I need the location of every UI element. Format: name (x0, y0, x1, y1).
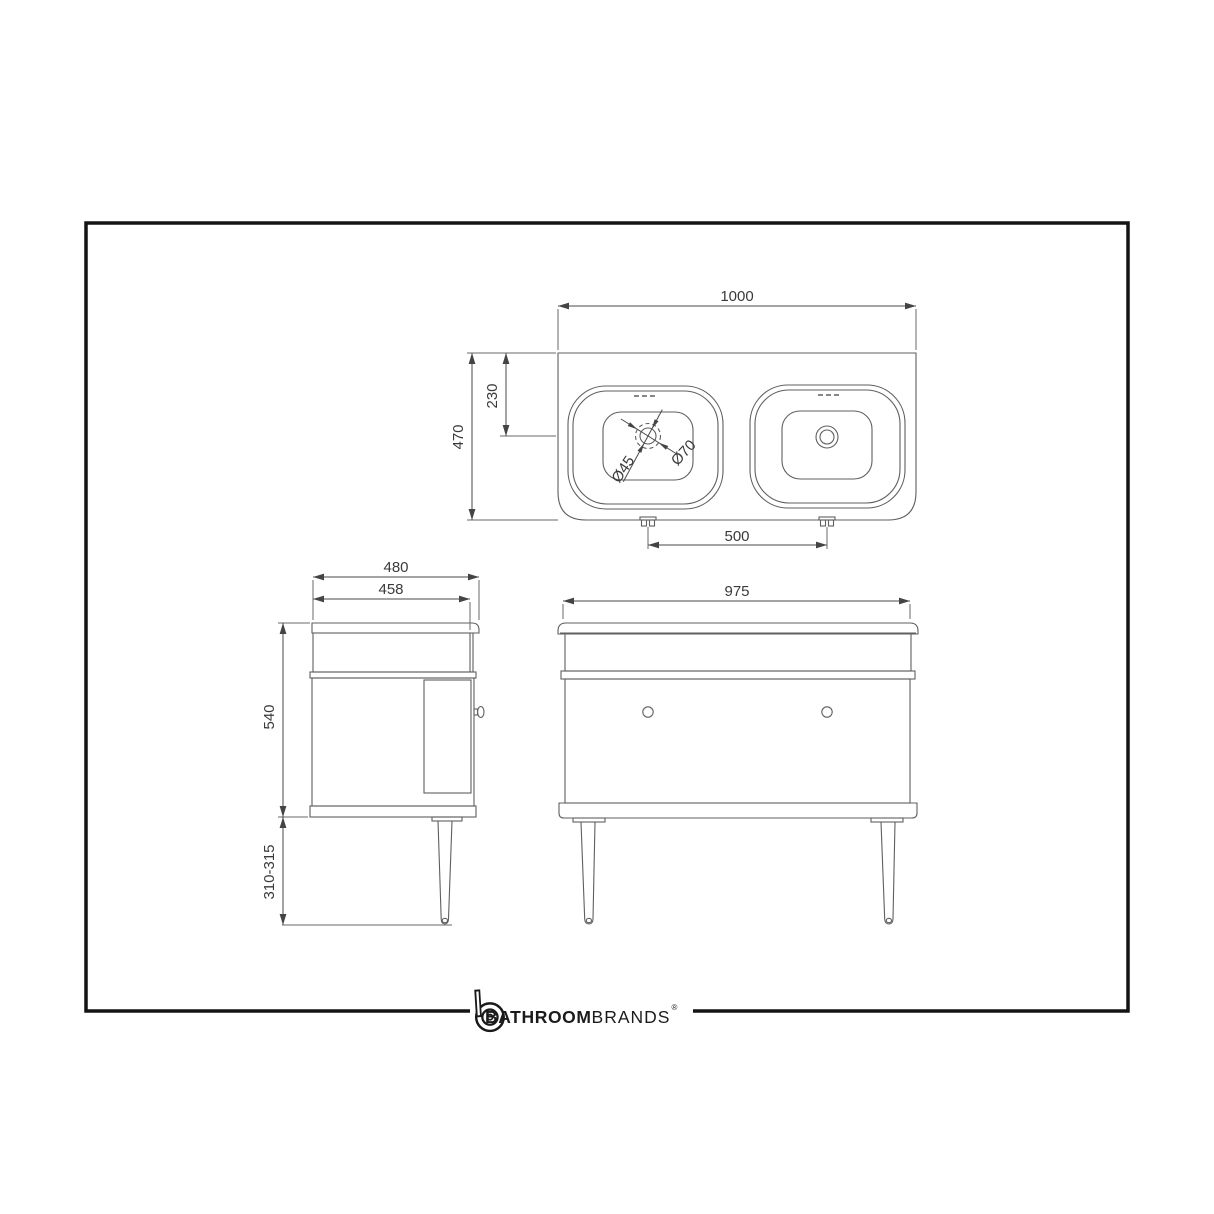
dim-waste-small-label: Ø45 (608, 453, 638, 486)
dim-front-width-label: 975 (724, 583, 749, 600)
front-leg-right (871, 818, 903, 924)
side-basin-band (313, 633, 473, 672)
front-mid-lip (561, 671, 915, 679)
dim-waste-large-label: Ø70 (668, 437, 700, 469)
side-leg (438, 821, 452, 924)
basin-right (750, 385, 905, 508)
dim-leg-height-label: 310-315 (261, 844, 278, 899)
dim-drain-setback: 230 (484, 353, 556, 436)
side-view: 480 458 540 310-315 (261, 559, 484, 925)
side-leg-foot (442, 918, 447, 922)
front-view: 975 (558, 583, 918, 924)
bathroom-brands-logo-icon (470, 987, 508, 1034)
fixing-brackets (640, 517, 835, 526)
dim-top-depth-label: 470 (450, 424, 467, 449)
dim-cabinet-height-label: 540 (261, 704, 278, 729)
dim-top-width-label: 1000 (720, 288, 753, 305)
side-knob (474, 707, 484, 718)
side-counter-rim (312, 623, 479, 633)
front-drawer (565, 679, 910, 803)
side-leg-plate (432, 817, 462, 821)
dim-top-width: 1000 (558, 288, 916, 350)
top-view: Ø45 Ø70 (450, 288, 916, 549)
basin-right-outer-rim (750, 385, 905, 508)
dim-side-depth-overall-label: 480 (383, 559, 408, 576)
dim-fixing-centres-label: 500 (724, 528, 749, 545)
drain-right-outer (816, 426, 838, 448)
brand-name-light: BRANDS (592, 1007, 671, 1027)
knob-right (822, 707, 832, 717)
brand-wordmark: BATHROOMBRANDS® (485, 1004, 678, 1027)
knob-left (643, 707, 653, 717)
front-basin-band (565, 633, 911, 671)
dim-cabinet-height: 540 (261, 623, 310, 817)
registered-mark-icon: ® (671, 1003, 678, 1012)
side-plinth (310, 806, 476, 817)
brand-logo: BATHROOMBRANDS® (470, 987, 693, 1043)
arrow-d70-a (659, 443, 669, 450)
dim-fixing-centres: 500 (648, 527, 827, 549)
drain-right-inner (820, 430, 834, 444)
sheet-border (86, 223, 1128, 1011)
dim-front-width: 975 (563, 583, 910, 619)
front-counter-rim (558, 623, 918, 634)
side-door-panel (424, 680, 471, 793)
dim-leg-height: 310-315 (261, 817, 283, 925)
side-cabinet-body (312, 678, 474, 806)
dim-drain-setback-label: 230 (484, 383, 501, 408)
basin-left: Ø45 Ø70 (568, 386, 723, 509)
basin-right-inner-rim (755, 390, 900, 503)
arrow-d70-b (628, 422, 638, 429)
front-leg-left (573, 818, 605, 924)
front-plinth (559, 803, 917, 818)
dim-side-depth-cabinet-label: 458 (378, 581, 403, 598)
countertop-outline (558, 353, 916, 520)
basin-left-outer-rim (568, 386, 723, 509)
basin-right-bowl (782, 411, 872, 479)
side-mid-lip (310, 672, 476, 678)
